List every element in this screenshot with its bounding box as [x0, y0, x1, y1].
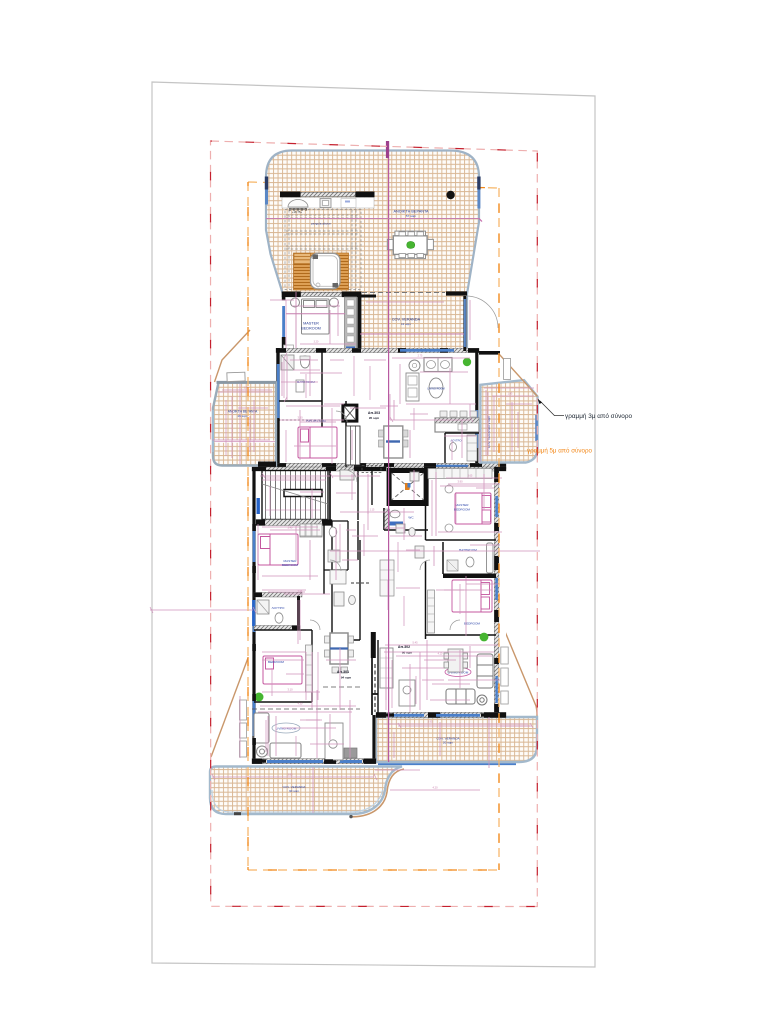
svg-text:WC: WC: [408, 516, 414, 520]
svg-text:BEDROOM: BEDROOM: [301, 327, 321, 331]
svg-text:Απ.303: Απ.303: [368, 411, 380, 415]
svg-text:3.90: 3.90: [457, 480, 463, 484]
svg-text:4.20: 4.20: [432, 786, 438, 790]
svg-text:Απ.301: Απ.301: [337, 670, 349, 674]
svg-text:4.10: 4.10: [438, 653, 443, 656]
svg-text:3.10: 3.10: [287, 688, 293, 692]
svg-text:COV. VERANDA: COV. VERANDA: [392, 318, 421, 322]
svg-text:LIVING ROOM: LIVING ROOM: [427, 387, 444, 391]
svg-text:20 sqm: 20 sqm: [443, 741, 454, 745]
svg-text:2.85: 2.85: [298, 591, 303, 594]
svg-text:16 sqm: 16 sqm: [237, 414, 248, 418]
svg-text:3.95: 3.95: [428, 721, 433, 724]
svg-text:pergola above: pergola above: [311, 222, 331, 226]
svg-text:MASTER: MASTER: [456, 503, 470, 507]
svg-text:2.75: 2.75: [418, 355, 423, 358]
svg-text:30 sqm: 30 sqm: [289, 789, 300, 793]
svg-text:94 sqm: 94 sqm: [341, 676, 352, 680]
svg-text:3.40: 3.40: [288, 527, 293, 530]
svg-text:BEDROOM: BEDROOM: [268, 660, 284, 664]
svg-text:Απ.302: Απ.302: [398, 645, 410, 649]
svg-text:MASTER: MASTER: [303, 322, 319, 326]
svg-text:4.30: 4.30: [298, 703, 303, 706]
svg-text:1.15: 1.15: [370, 509, 375, 512]
svg-text:1.45: 1.45: [508, 393, 513, 396]
svg-text:LIVING ROOM: LIVING ROOM: [276, 727, 297, 731]
svg-text:+18.75+: +18.75+: [292, 210, 303, 214]
svg-text:γραμμή 5μ από σύνορο: γραμμή 5μ από σύνορο: [527, 448, 592, 455]
svg-text:11 sqm: 11 sqm: [401, 322, 411, 326]
svg-text:γραμμή 3μ από σύνορο: γραμμή 3μ από σύνορο: [565, 412, 632, 420]
svg-text:3.85: 3.85: [287, 773, 293, 777]
svg-text:5.45: 5.45: [412, 641, 418, 645]
svg-text:95 sqm: 95 sqm: [369, 416, 380, 420]
svg-text:57 sqm: 57 sqm: [406, 214, 417, 218]
svg-text:BEDROOM: BEDROOM: [464, 622, 480, 626]
svg-text:BATHROOM: BATHROOM: [459, 548, 477, 552]
svg-text:BEDROOM: BEDROOM: [454, 508, 470, 512]
svg-text:ΛΟΥΤΡΟ: ΛΟΥΤΡΟ: [272, 606, 285, 610]
svg-text:ΑΝΟΙΚΤΗ ΒΕΡΑΝΤΑ: ΑΝΟΙΚΤΗ ΒΕΡΑΝΤΑ: [393, 210, 429, 214]
svg-text:98 sqm: 98 sqm: [402, 651, 413, 655]
svg-text:3.20: 3.20: [314, 341, 319, 344]
svg-text:3.65: 3.65: [468, 475, 473, 478]
svg-text:BEDROOM: BEDROOM: [282, 563, 298, 567]
